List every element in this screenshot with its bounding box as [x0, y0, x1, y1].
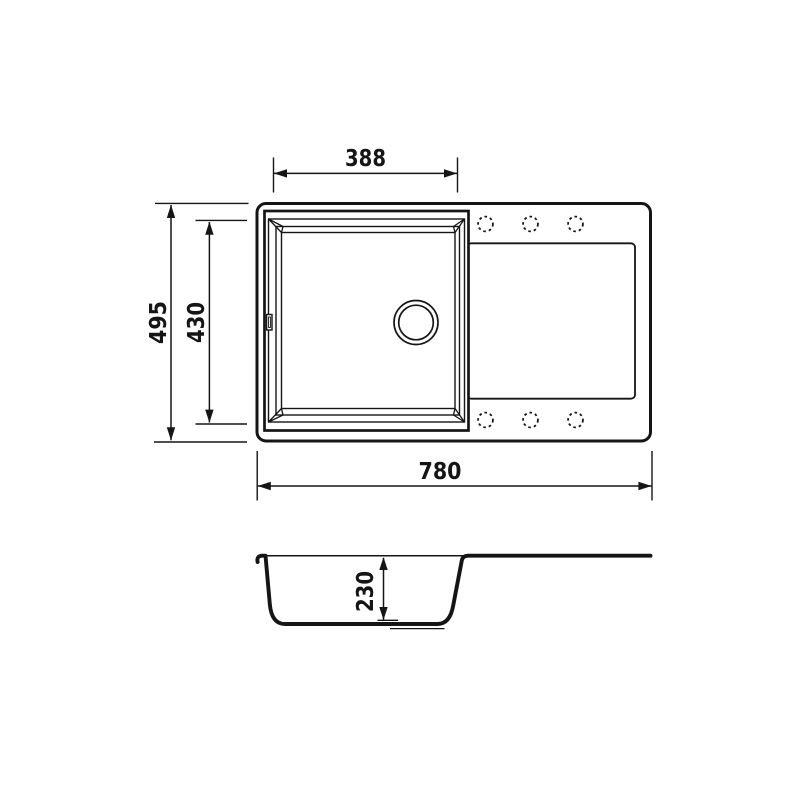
dim-label-overall-depth: 495 [146, 301, 172, 344]
arrowhead-up-icon [379, 557, 387, 570]
dim-label-overall-width: 780 [419, 459, 462, 485]
dim-label-bowl-width: 388 [345, 146, 386, 172]
sink-technical-drawing: 388 495 430 780 [0, 0, 800, 800]
side-view: 230 [257, 556, 650, 629]
dim-label-bowl-height: 230 [353, 571, 379, 612]
dim-label-bowl-depth: 430 [184, 302, 210, 343]
overflow-slot [267, 315, 272, 331]
dimension-bowl-height: 230 [353, 557, 398, 620]
arrowhead-down-icon [205, 410, 213, 423]
drawing-canvas: 388 495 430 780 [0, 0, 800, 800]
dimension-overall-width: 780 [257, 451, 652, 501]
tap-hole-marker [478, 413, 493, 428]
arrowhead-up-icon [205, 222, 213, 235]
arrowhead-right-icon [638, 482, 651, 490]
arrowhead-down-icon [379, 607, 387, 620]
arrowhead-down-icon [167, 427, 175, 440]
dimension-bowl-depth: 430 [184, 220, 247, 424]
top-view: 388 495 430 780 [146, 146, 652, 501]
tap-hole-marker [568, 217, 583, 232]
tap-hole-marker [523, 413, 538, 428]
tap-hole-marker [478, 217, 493, 232]
section-profile [257, 556, 650, 624]
arrowhead-left-icon [274, 169, 287, 177]
bowl [265, 211, 469, 431]
tap-hole-marker [568, 413, 583, 428]
tap-holes-top-row [478, 217, 583, 232]
tap-hole-marker [523, 217, 538, 232]
drainboard-outline [467, 243, 635, 398]
dimension-bowl-width: 388 [274, 146, 458, 193]
arrowhead-right-icon [444, 169, 457, 177]
tap-holes-bottom-row [478, 413, 583, 428]
arrowhead-up-icon [167, 205, 175, 218]
arrowhead-left-icon [258, 482, 271, 490]
